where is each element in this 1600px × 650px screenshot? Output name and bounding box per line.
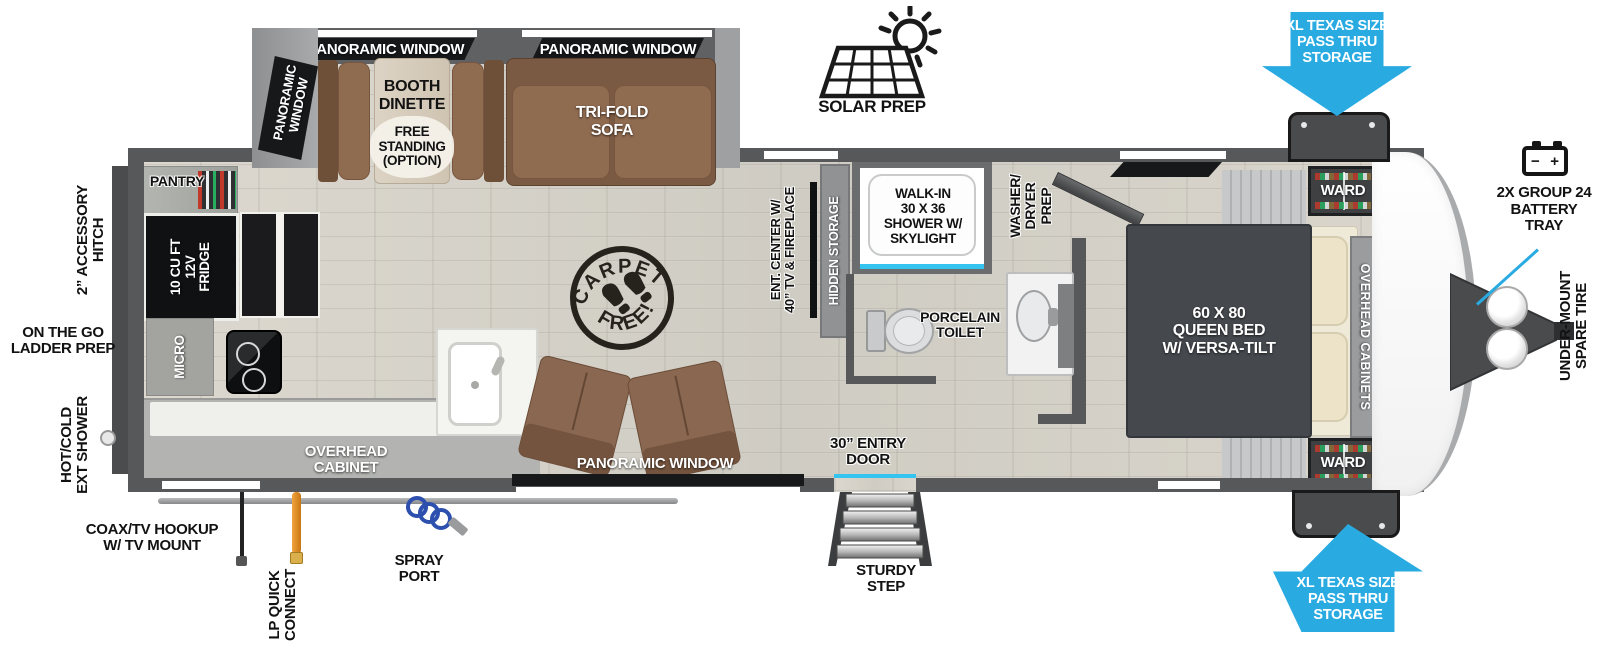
lp-quick-connect-label: LP QUICK CONNECT: [264, 559, 302, 650]
coax-cable-icon: [240, 492, 244, 558]
shower-threshold-accent: [860, 264, 984, 269]
bath-wall: [1072, 238, 1086, 424]
battery-icon: − +: [1522, 146, 1568, 176]
screw-icon: [1379, 523, 1385, 529]
queen-bed-label: 60 X 80 QUEEN BED W/ VERSA-TILT: [1136, 300, 1302, 362]
bath-wall: [846, 274, 854, 384]
booth-dinette-label: BOOTH DINETTE: [357, 76, 467, 116]
battery-plus: +: [1550, 153, 1559, 170]
propane-tank-icon: [1486, 328, 1528, 370]
toilet-label: PORCELAIN TOILET: [900, 307, 1020, 343]
spray-hose-coil-icon: [430, 508, 452, 530]
solar-prep-icon: [818, 6, 944, 102]
sink-drain-icon: [471, 381, 479, 389]
ladder-prep-label: ON THE GO LADDER PREP: [0, 322, 128, 360]
screw-icon: [1369, 122, 1375, 128]
bath-wall: [1038, 414, 1086, 424]
sturdy-step-label: STURDY STEP: [841, 560, 931, 598]
living-bottom-window: [512, 474, 804, 486]
entry-door-label: 30” ENTRY DOOR: [813, 433, 923, 471]
washer-dryer-prep-label: WASHER/ DRYER PREP: [1000, 144, 1062, 268]
entry-door-opening: [834, 478, 916, 492]
counter-panel: [242, 214, 276, 316]
ward-bottom-label: WARD: [1308, 452, 1378, 474]
spray-nozzle-icon: [447, 517, 468, 537]
pass-thru-top-label: XL TEXAS SIZE PASS THRU STORAGE: [1280, 17, 1394, 69]
rear-bumper: [112, 166, 128, 474]
tri-fold-sofa-label: TRI-FOLD SOFA: [566, 100, 658, 144]
bed-side-mat-top: [1222, 170, 1306, 224]
vanity: [1006, 272, 1074, 376]
screw-icon: [1306, 523, 1312, 529]
window-strip: [522, 30, 712, 37]
cooktop: [226, 330, 282, 394]
spray-port-label: SPRAY PORT: [379, 550, 459, 588]
slideout-right-wall: [715, 28, 740, 168]
battery-tray-label: 2X GROUP 24 BATTERY TRAY: [1484, 182, 1600, 238]
counter-panel: [284, 214, 318, 316]
window-strip: [764, 151, 838, 159]
bath-faucet-icon: [1048, 308, 1058, 326]
hidden-storage-label: HIDDEN STORAGE: [824, 166, 846, 336]
ext-shower-knob-icon: [100, 430, 116, 446]
rear-wall: [128, 148, 144, 492]
bath-wall: [846, 376, 936, 384]
burner-icon: [242, 368, 266, 392]
ext-shower-label: HOT/COLD EXT SHOWER: [56, 390, 94, 500]
bed-side-mat-bottom: [1222, 436, 1306, 478]
coax-connector-icon: [236, 556, 247, 566]
booth-bench-back: [484, 60, 504, 182]
fridge-label: 10 CU FT 12V FRIDGE: [162, 217, 220, 317]
window-strip: [1158, 481, 1220, 489]
kitchen-countertop: [150, 402, 438, 436]
floorplan-canvas: PANTRY 10 CU FT 12V FRIDGE MICRO OVERHEA…: [0, 0, 1600, 650]
toilet-tank: [866, 310, 886, 352]
tv-icon: [810, 182, 817, 318]
bath-sink: [1016, 290, 1052, 342]
pano-top2-label: PANORAMIC WINDOW: [518, 40, 718, 60]
coax-label: COAX/TV HOOKUP W/ TV MOUNT: [67, 519, 237, 557]
pantry-label: PANTRY: [146, 172, 208, 192]
booth-option-label: FREE STANDING (OPTION): [362, 120, 462, 174]
ward-top-label: WARD: [1308, 180, 1378, 202]
kitchen-sink: [448, 342, 502, 426]
pass-thru-box-top: [1288, 112, 1390, 162]
screw-icon: [1301, 122, 1307, 128]
window-strip: [162, 481, 260, 489]
booth-bench-back: [318, 60, 338, 182]
shower-label: WALK-IN 30 X 36 SHOWER W/ SKYLIGHT: [867, 176, 979, 258]
pano-bottom-label: PANORAMIC WINDOW: [555, 454, 755, 474]
pass-thru-bottom-label: XL TEXAS SIZE PASS THRU STORAGE: [1291, 574, 1405, 626]
overhead-cabinet-label: OVERHEAD CABINET: [271, 442, 421, 478]
pass-thru-arrow-top: XL TEXAS SIZE PASS THRU STORAGE: [1262, 12, 1412, 116]
counter-gap: [240, 212, 320, 318]
entry-door-accent: [834, 474, 916, 478]
burner-icon: [236, 342, 260, 366]
vanity-backsplash: [1058, 284, 1074, 368]
ent-center-label: ENT. CENTER W/ 40” TV & FIREPLACE: [763, 165, 803, 335]
pass-thru-arrow-bottom: XL TEXAS SIZE PASS THRU STORAGE: [1273, 524, 1423, 632]
sturdy-step-icon: [828, 492, 932, 566]
lp-hose-icon: [292, 492, 301, 554]
spare-tire-label: UNDER-MOUNT SPARE TIRE: [1554, 241, 1594, 411]
window-strip: [1120, 151, 1226, 159]
accessory-hitch-label: 2” ACCESSORY HITCH: [71, 165, 111, 315]
window-strip: [516, 487, 800, 492]
micro-label: MICRO: [171, 317, 189, 397]
battery-minus: −: [1531, 153, 1540, 170]
solar-prep-label: SOLAR PREP: [797, 96, 947, 118]
bedroom-window: [1110, 162, 1222, 177]
